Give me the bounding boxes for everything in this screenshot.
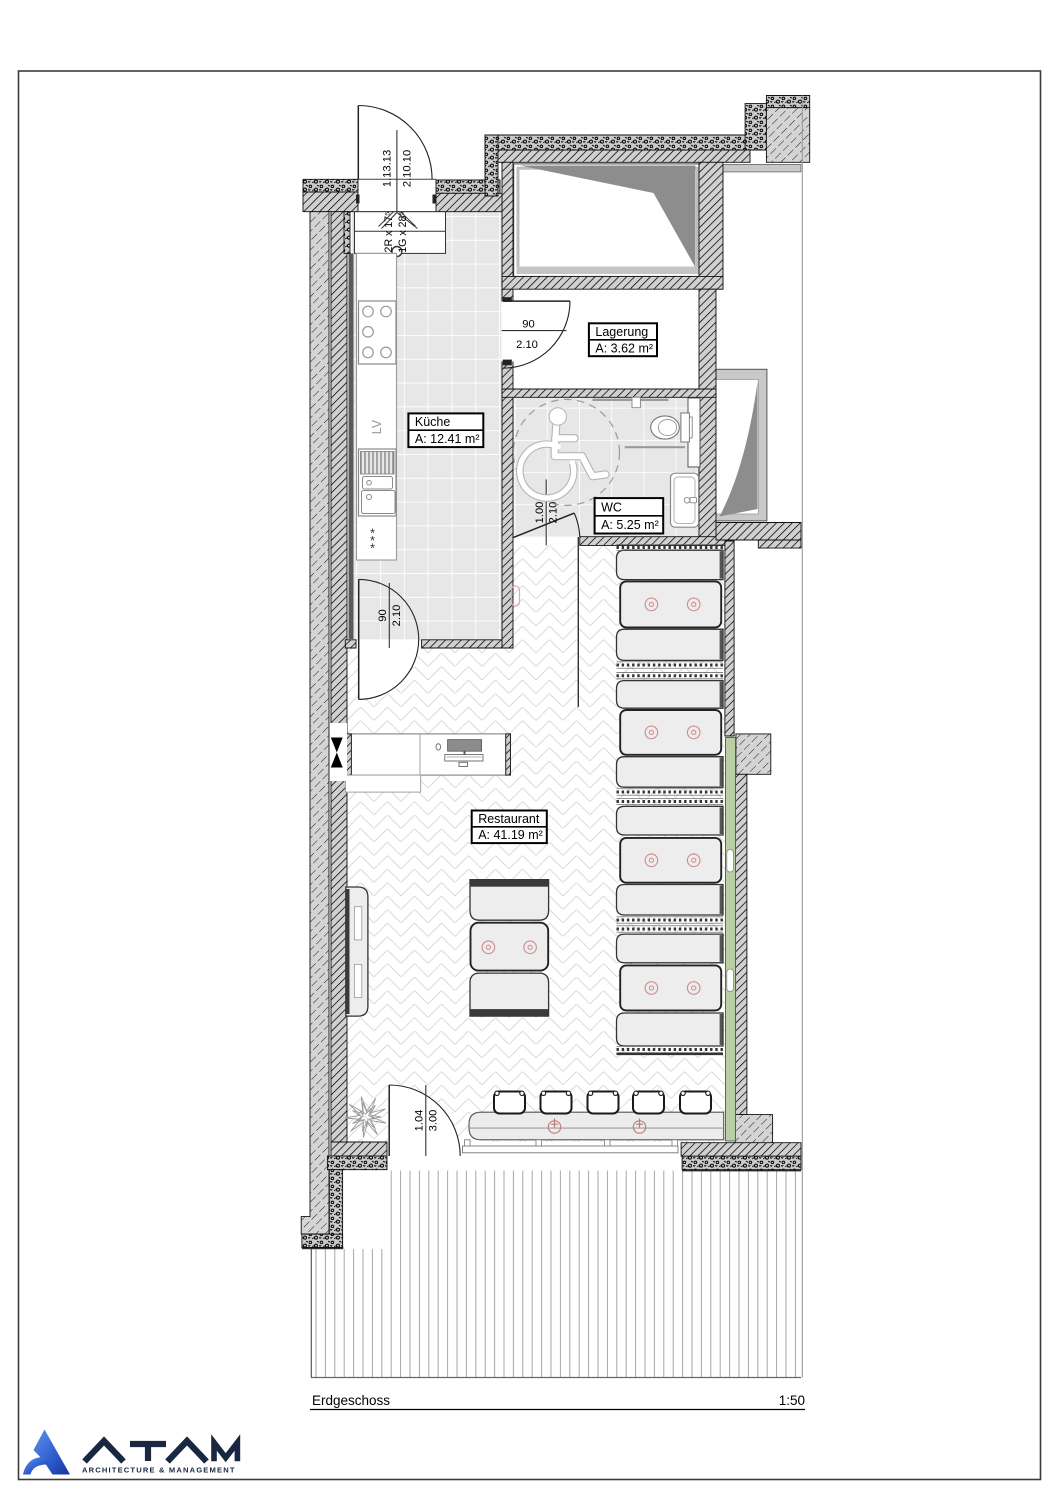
svg-text:*: * [370,541,375,556]
svg-text:90: 90 [377,609,389,621]
svg-text:Restaurant: Restaurant [478,812,540,826]
svg-text:A: 5.25 m²: A: 5.25 m² [601,518,659,532]
svg-text:1.00: 1.00 [534,502,546,524]
svg-text:A: 41.19 m²: A: 41.19 m² [478,828,543,842]
svg-text:2.10: 2.10 [391,605,403,627]
svg-text:1:50: 1:50 [779,1393,805,1408]
svg-text:1G x 28⁵: 1G x 28⁵ [397,211,409,253]
svg-text:LV: LV [370,419,384,434]
svg-text:2R x 17⁵: 2R x 17⁵ [383,212,395,253]
svg-text:Erdgeschoss: Erdgeschoss [312,1393,390,1408]
svg-text:1.04: 1.04 [414,1110,426,1132]
svg-text:2.10.10: 2.10.10 [402,150,414,187]
svg-text:ARCHITECTURE & MANAGEMENT: ARCHITECTURE & MANAGEMENT [82,1466,236,1475]
svg-text:A: 3.62 m²: A: 3.62 m² [595,341,653,355]
svg-text:3.00: 3.00 [427,1110,439,1132]
svg-text:Lagerung: Lagerung [595,325,648,339]
svg-text:Küche: Küche [415,415,450,429]
svg-text:WC: WC [601,500,622,514]
svg-text:90: 90 [522,318,534,330]
svg-text:1.13.13: 1.13.13 [382,150,394,187]
svg-text:A: 12.41 m²: A: 12.41 m² [415,432,480,446]
svg-text:2.10: 2.10 [516,339,538,351]
